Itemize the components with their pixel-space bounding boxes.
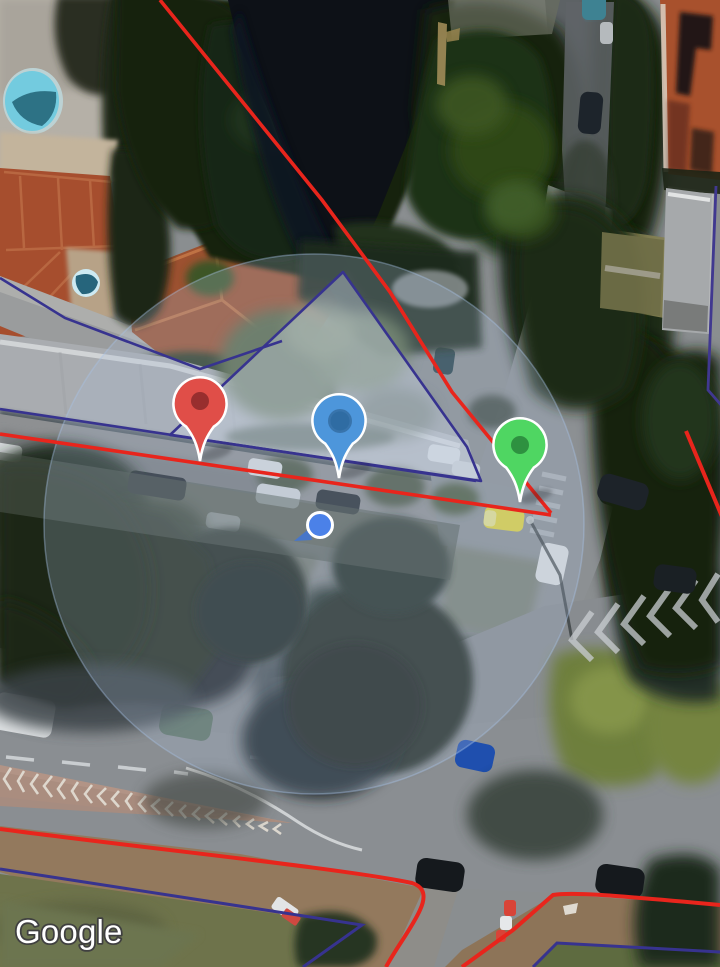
- svg-text:Google: Google: [15, 913, 123, 950]
